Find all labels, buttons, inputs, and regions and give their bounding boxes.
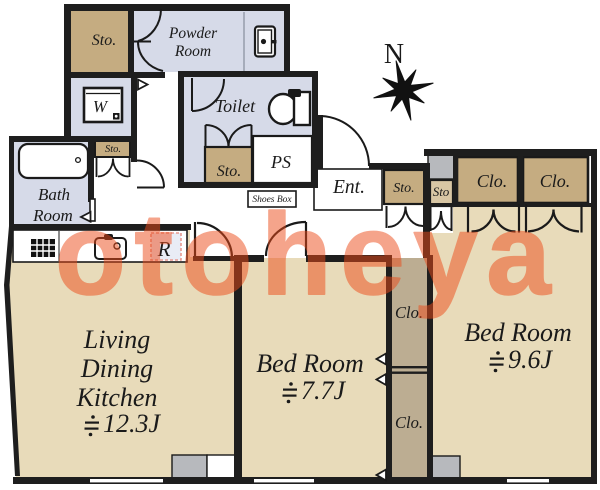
svg-text:Bed Room: Bed Room <box>256 349 364 378</box>
svg-text:Dining: Dining <box>80 354 153 383</box>
svg-text:Living: Living <box>83 325 150 354</box>
svg-text:Powder: Powder <box>168 25 218 42</box>
svg-text:12.3J: 12.3J <box>103 409 162 438</box>
svg-text:Clo.: Clo. <box>540 171 571 191</box>
svg-text:7.7J: 7.7J <box>301 376 347 405</box>
svg-text:Sto.: Sto. <box>105 144 121 155</box>
svg-text:Clo.: Clo. <box>395 413 423 432</box>
svg-text:Clo.: Clo. <box>477 171 508 191</box>
svg-text:otoheya: otoheya <box>55 189 559 319</box>
svg-text:Bed Room: Bed Room <box>464 318 572 347</box>
svg-text:N: N <box>384 39 404 70</box>
svg-text:W: W <box>93 97 109 116</box>
svg-text:9.6J: 9.6J <box>508 345 554 374</box>
svg-text:Toilet: Toilet <box>215 96 256 116</box>
svg-text:Kitchen: Kitchen <box>76 383 158 412</box>
svg-text:PS: PS <box>270 152 291 172</box>
svg-text:Sto.: Sto. <box>92 32 116 49</box>
svg-text:Room: Room <box>174 43 211 60</box>
svg-text:Sto.: Sto. <box>217 163 241 180</box>
